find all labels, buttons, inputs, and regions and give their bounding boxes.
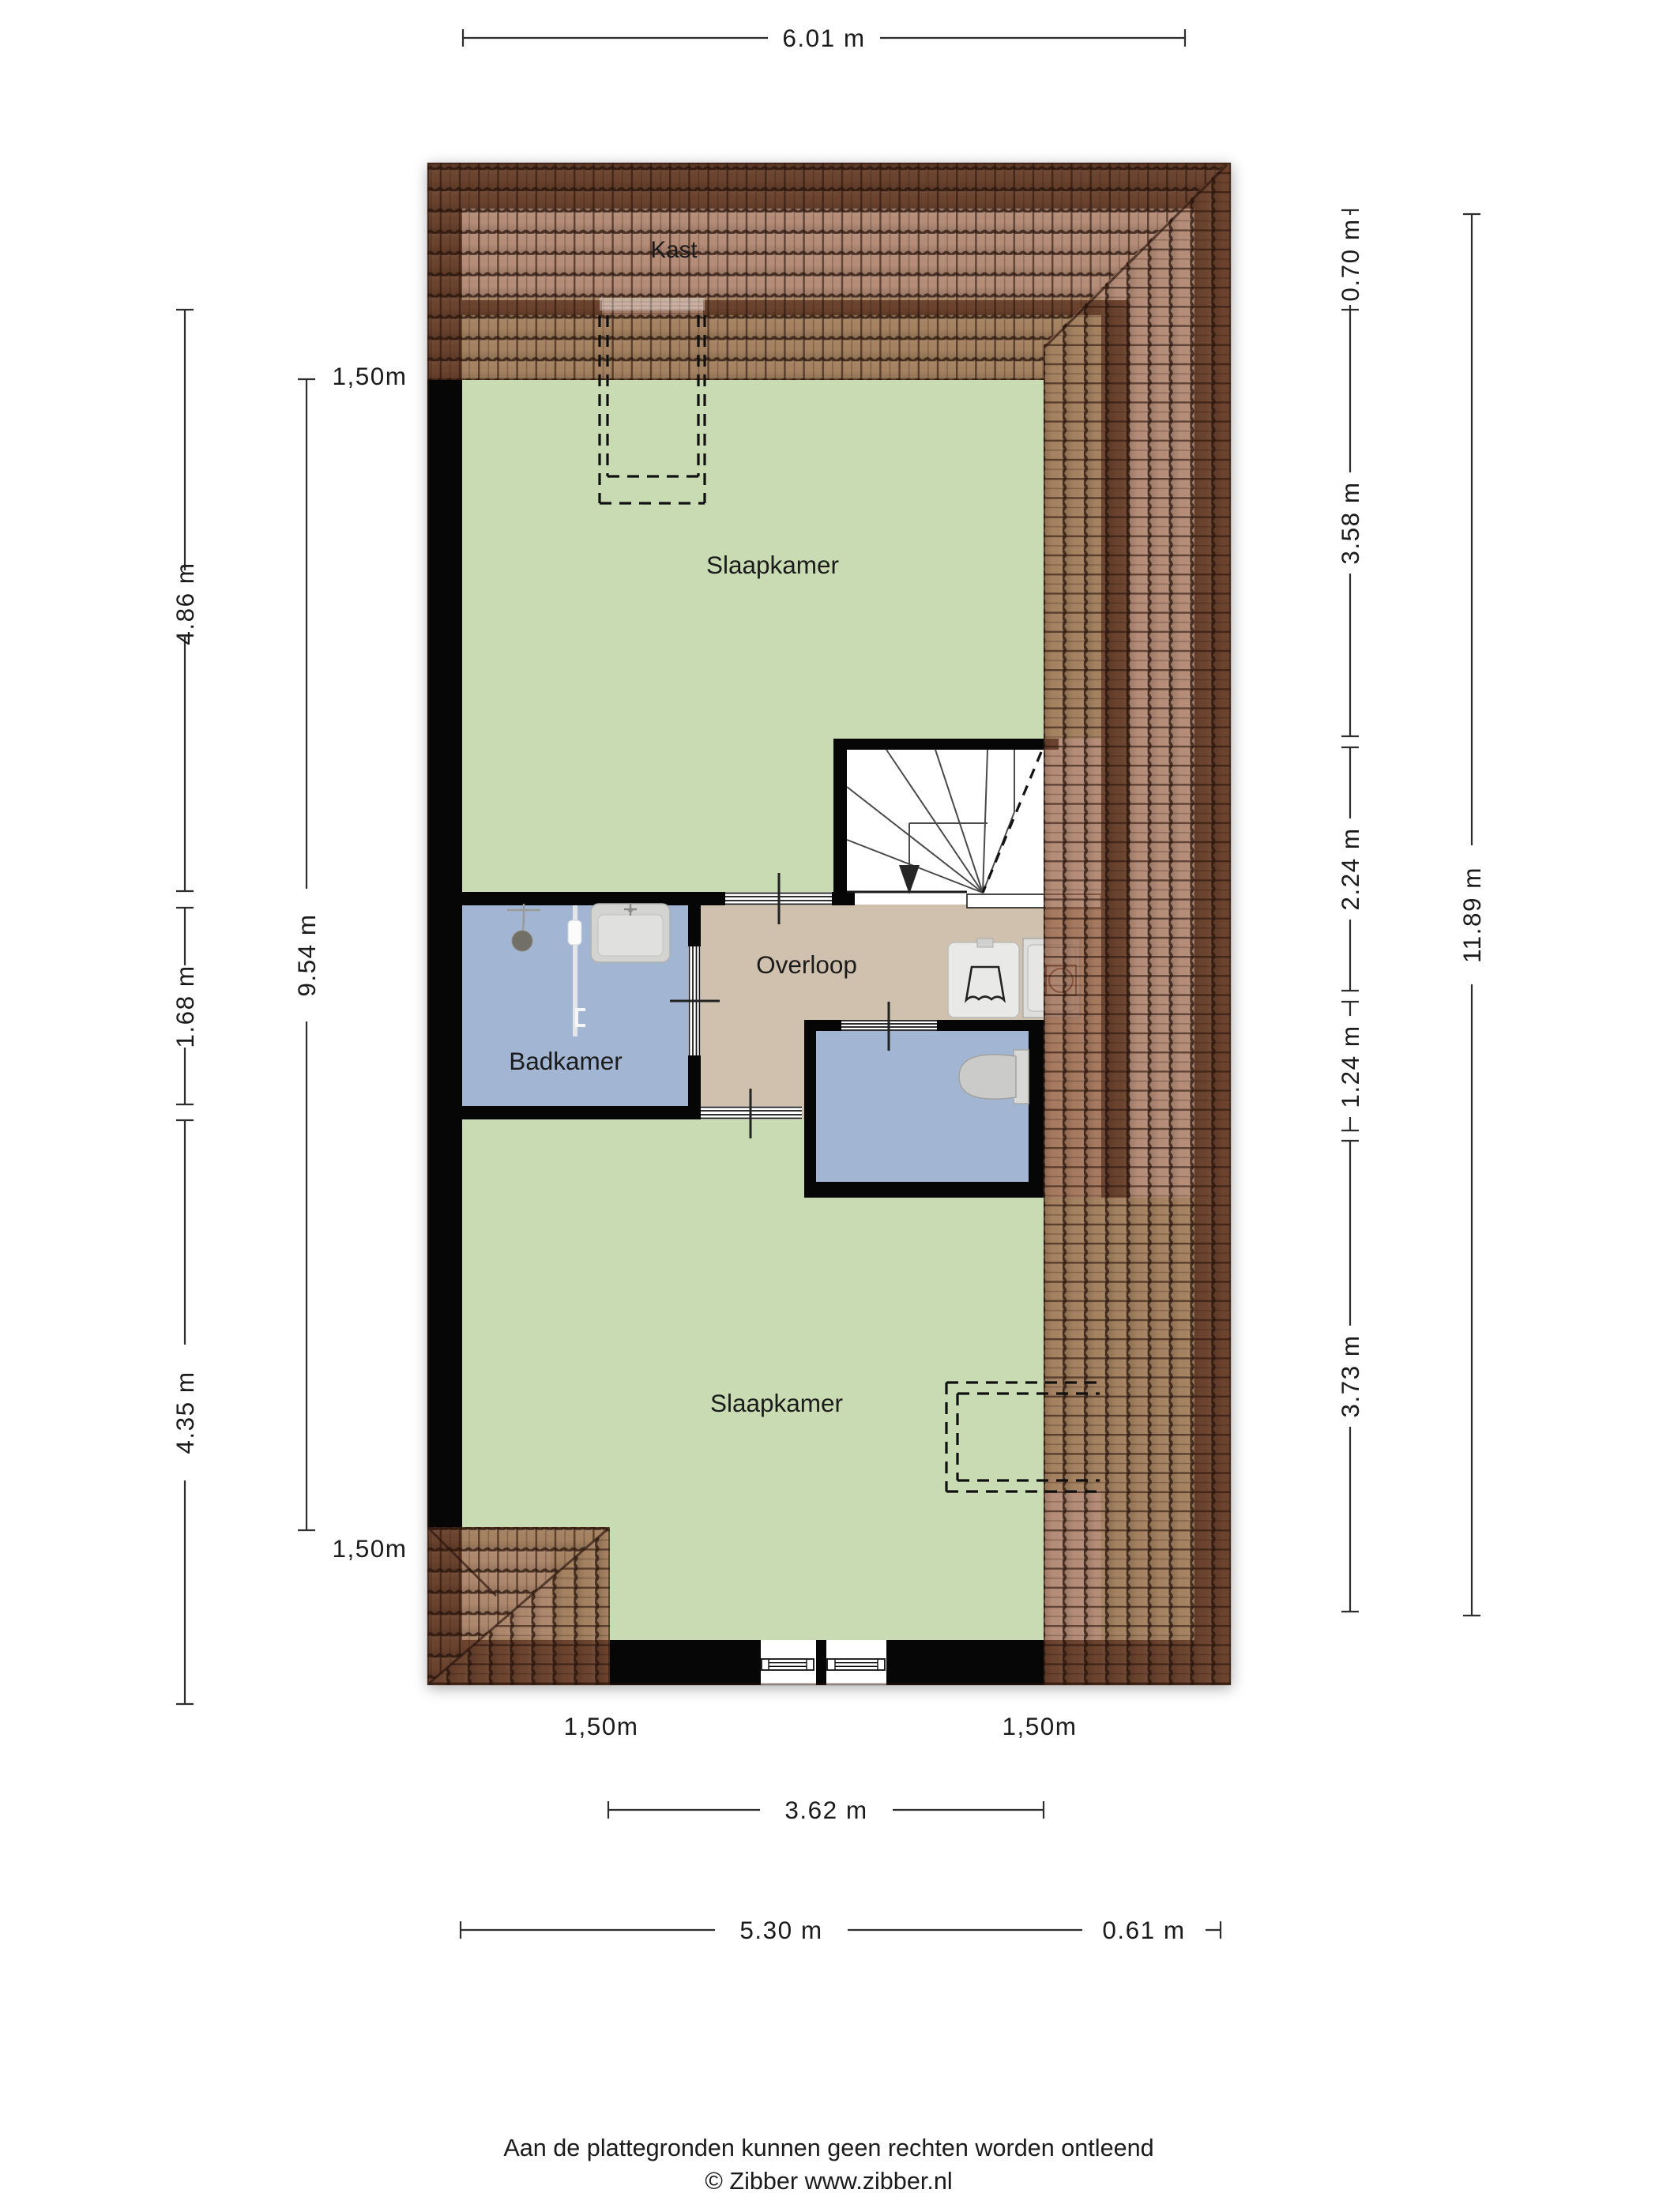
svg-text:Slaapkamer: Slaapkamer (706, 551, 839, 579)
svg-text:6.01 m: 6.01 m (782, 24, 865, 52)
svg-text:1.24 m: 1.24 m (1336, 1025, 1364, 1108)
svg-text:1,50m: 1,50m (1002, 1712, 1077, 1740)
svg-text:5.30 m: 5.30 m (739, 1916, 822, 1944)
svg-text:3.73 m: 3.73 m (1336, 1334, 1364, 1417)
svg-text:1,50m: 1,50m (332, 362, 407, 390)
svg-text:Badkamer: Badkamer (509, 1047, 623, 1075)
svg-text:0.70 m: 0.70 m (1336, 218, 1364, 301)
svg-text:9.54 m: 9.54 m (292, 913, 321, 996)
svg-text:0.61 m: 0.61 m (1102, 1916, 1185, 1944)
svg-text:1.68 m: 1.68 m (171, 965, 199, 1048)
svg-text:1,50m: 1,50m (332, 1534, 407, 1563)
svg-text:4.86 m: 4.86 m (171, 562, 199, 645)
svg-text:3.62 m: 3.62 m (784, 1796, 867, 1824)
svg-text:© Zibber www.zibber.nl: © Zibber www.zibber.nl (705, 2168, 952, 2195)
svg-text:Aan de plattegronden kunnen ge: Aan de plattegronden kunnen geen rechten… (503, 2135, 1153, 2161)
svg-text:Slaapkamer: Slaapkamer (710, 1389, 843, 1417)
svg-text:2.24 m: 2.24 m (1336, 827, 1364, 910)
svg-text:3.58 m: 3.58 m (1336, 481, 1364, 564)
svg-text:4.35 m: 4.35 m (171, 1371, 199, 1454)
svg-text:Kast: Kast (650, 237, 697, 263)
svg-text:11.89 m: 11.89 m (1458, 867, 1486, 963)
svg-text:1,50m: 1,50m (563, 1712, 638, 1740)
svg-text:Overloop: Overloop (756, 950, 857, 979)
